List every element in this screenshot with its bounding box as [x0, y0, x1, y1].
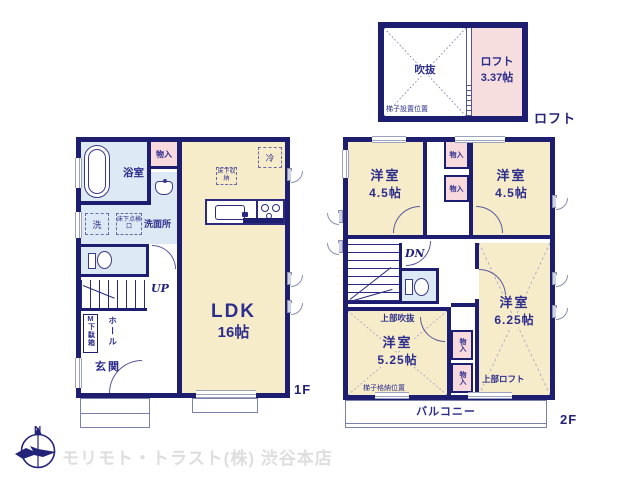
casement-window-icon — [287, 272, 303, 288]
window — [372, 136, 406, 143]
loft-void-area: 吹抜 梯子設置位置 — [384, 28, 466, 116]
floor1-tag: 1F — [294, 382, 311, 397]
closet-1f: 物入 — [151, 142, 177, 169]
ldk-size-label: 16帖 — [182, 324, 285, 343]
loft-floor-tag: ロフト — [534, 108, 576, 127]
porch-step — [80, 398, 150, 414]
loft-room: ロフト 3.37帖 — [472, 28, 522, 116]
toilet-icon — [405, 279, 413, 295]
closet-2f: 物入 — [451, 330, 473, 360]
company-watermark: モリモト・トラスト(株) 渋谷本店 — [62, 444, 333, 469]
kitchen-sink-icon — [215, 205, 245, 220]
window — [455, 136, 505, 143]
room-toilet-2f — [398, 268, 439, 304]
room-2f-se: 洋室 6.25帖 上部ロフト — [475, 243, 550, 395]
window — [75, 358, 82, 388]
window — [468, 392, 512, 399]
ladder-position-label: 梯子設置位置 — [385, 106, 429, 115]
toilet-door-arc — [152, 245, 176, 269]
hall-label: ホール — [107, 316, 118, 348]
laundry-space: 洗 — [85, 213, 109, 235]
bathtub-icon — [84, 145, 110, 198]
room-washroom: 洗 床下点検口 洗面所 — [81, 205, 177, 244]
door-arc — [393, 206, 420, 233]
room-2f-ne: 洋室 4.5帖 — [469, 142, 550, 239]
window — [75, 158, 82, 188]
floor2-tag: 2F — [560, 412, 577, 427]
upper-loft-label: 上部ロフト — [481, 374, 526, 385]
fridge-space: 冷 — [258, 147, 282, 168]
toilet-icon — [88, 253, 96, 269]
floor2-plan: 洋室 4.5帖 洋室 4.5帖 物入 物入 DN — [343, 137, 555, 400]
room-2f-sw: 上部吹抜 洋室 5.25帖 梯子格納位置 — [348, 307, 451, 395]
underfloor-hatch: 床下点検口 — [116, 213, 142, 235]
washbasin-icon — [155, 181, 173, 195]
closet-2f: 物入 — [444, 175, 469, 202]
porch-step — [80, 413, 150, 428]
bath-label: 浴室 — [123, 167, 144, 180]
casement-window-icon — [327, 240, 343, 256]
room-ldk: 冷 床下収納 LDK 16帖 — [182, 142, 285, 393]
room-hall: M 下駄箱 ホール — [81, 314, 147, 354]
floor1-plan: 冷 床下収納 LDK 16帖 浴室 物入 — [76, 137, 290, 398]
door-arc — [476, 206, 503, 233]
room-bath: 浴室 — [81, 142, 151, 205]
kitchen-counter-icon — [205, 199, 285, 225]
closet-2f: 物入 — [451, 363, 473, 393]
balcony: バルコニー — [345, 400, 547, 428]
stairs-2f — [348, 243, 402, 304]
svg-text:N: N — [34, 425, 41, 436]
entrance-label: 玄関 — [95, 361, 121, 375]
window — [375, 392, 409, 399]
window — [75, 212, 82, 238]
shoe-box: M 下駄箱 — [83, 314, 98, 353]
casement-window-icon — [327, 210, 343, 226]
room-entrance: 玄関 — [81, 354, 147, 393]
room-2f-nw: 洋室 4.5帖 — [348, 142, 427, 239]
casement-window-icon — [287, 300, 303, 316]
stairs-1f — [81, 280, 147, 311]
stairs-down-label: DN — [405, 247, 425, 260]
ldk-label: LDK — [182, 300, 285, 324]
window-sliding — [196, 390, 256, 398]
loft-plan: 吹抜 梯子設置位置 ロフト 3.37帖 — [378, 22, 528, 122]
north-compass-icon: N — [10, 422, 66, 478]
window — [342, 150, 349, 178]
balcony-label: バルコニー — [346, 406, 546, 420]
void-label: 吹抜 — [384, 64, 466, 77]
room-toilet-1f — [81, 244, 149, 277]
floorplan-canvas: 吹抜 梯子設置位置 ロフト 3.37帖 ロフト 冷 床下収納 LDK — [0, 0, 640, 480]
upper-void-label: 上部吹抜 — [348, 313, 447, 324]
washstand-nook — [151, 172, 177, 205]
underfloor-storage: 床下収納 — [216, 167, 237, 185]
casement-window-icon — [287, 168, 303, 184]
loft-room-size: 3.37帖 — [472, 72, 522, 86]
loft-room-label: ロフト — [472, 56, 522, 70]
casement-window-icon — [552, 195, 568, 211]
closet-2f: 物入 — [444, 142, 469, 169]
terrace-step — [192, 398, 258, 413]
washroom-label: 洗面所 — [144, 219, 171, 230]
stairs-up-label: UP — [151, 282, 169, 295]
casement-window-icon — [552, 272, 568, 288]
casement-window-icon — [552, 305, 568, 321]
